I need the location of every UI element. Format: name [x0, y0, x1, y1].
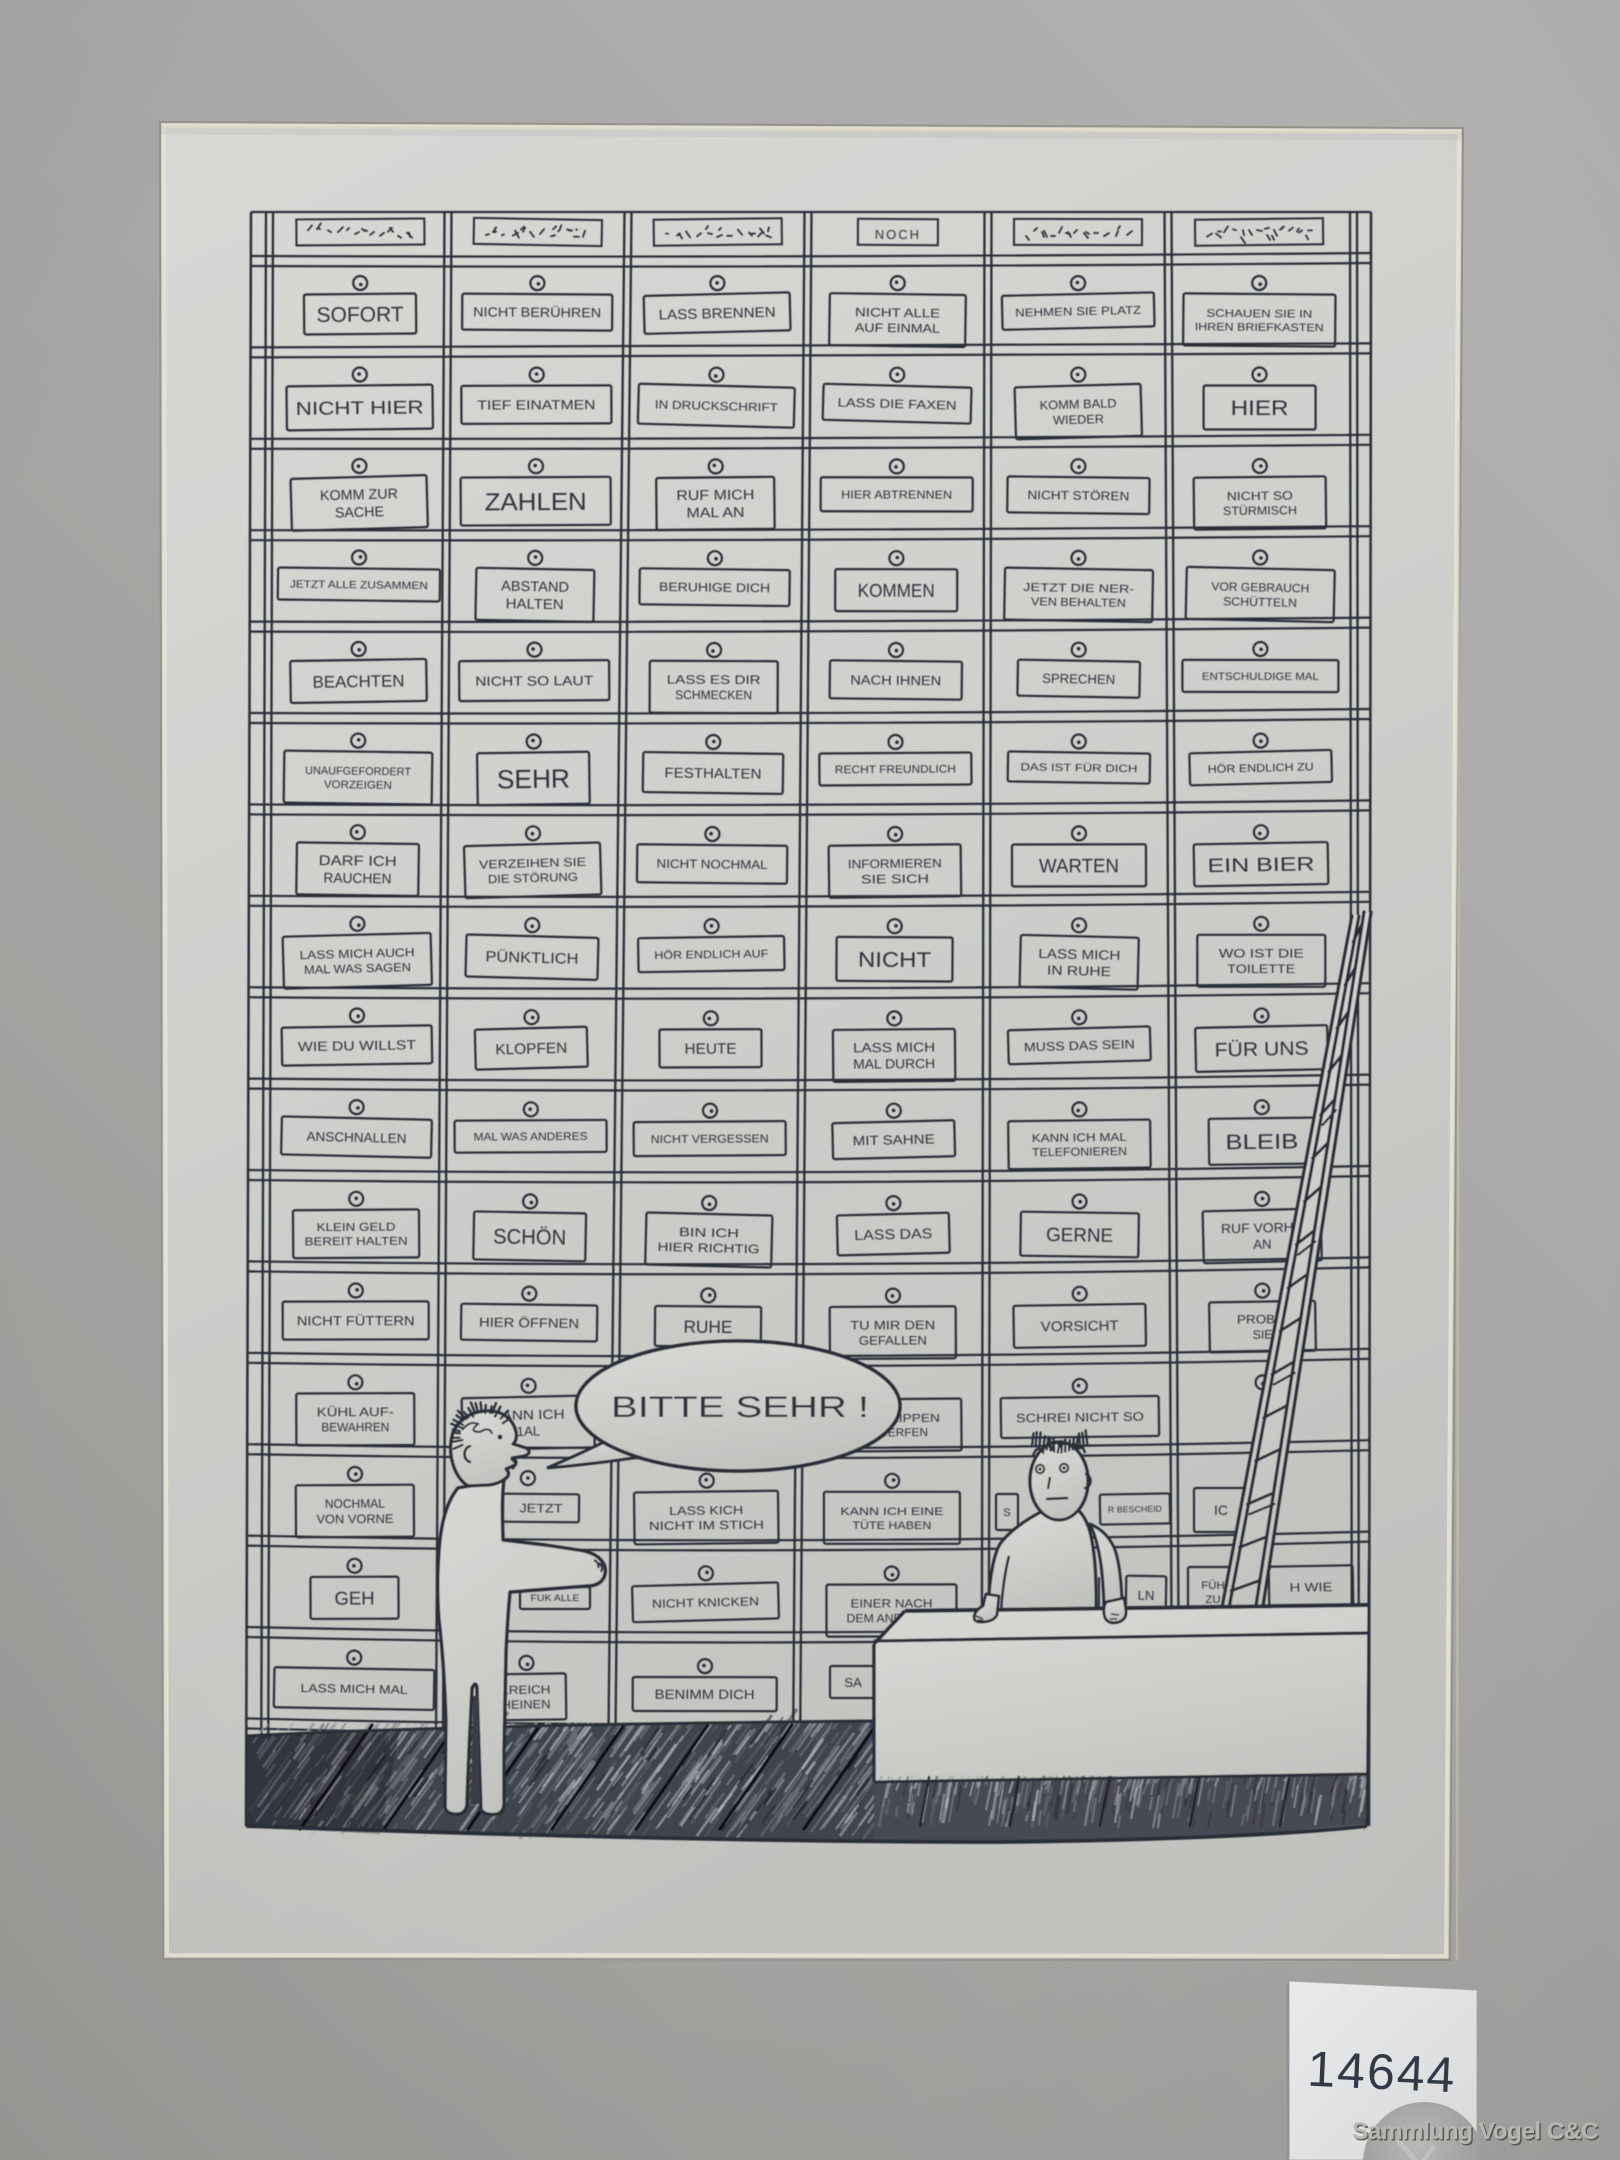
svg-text:14644: 14644 [1306, 2041, 1457, 2104]
svg-text:Sammlung Vogel C&C: Sammlung Vogel C&C [1352, 2118, 1599, 2145]
